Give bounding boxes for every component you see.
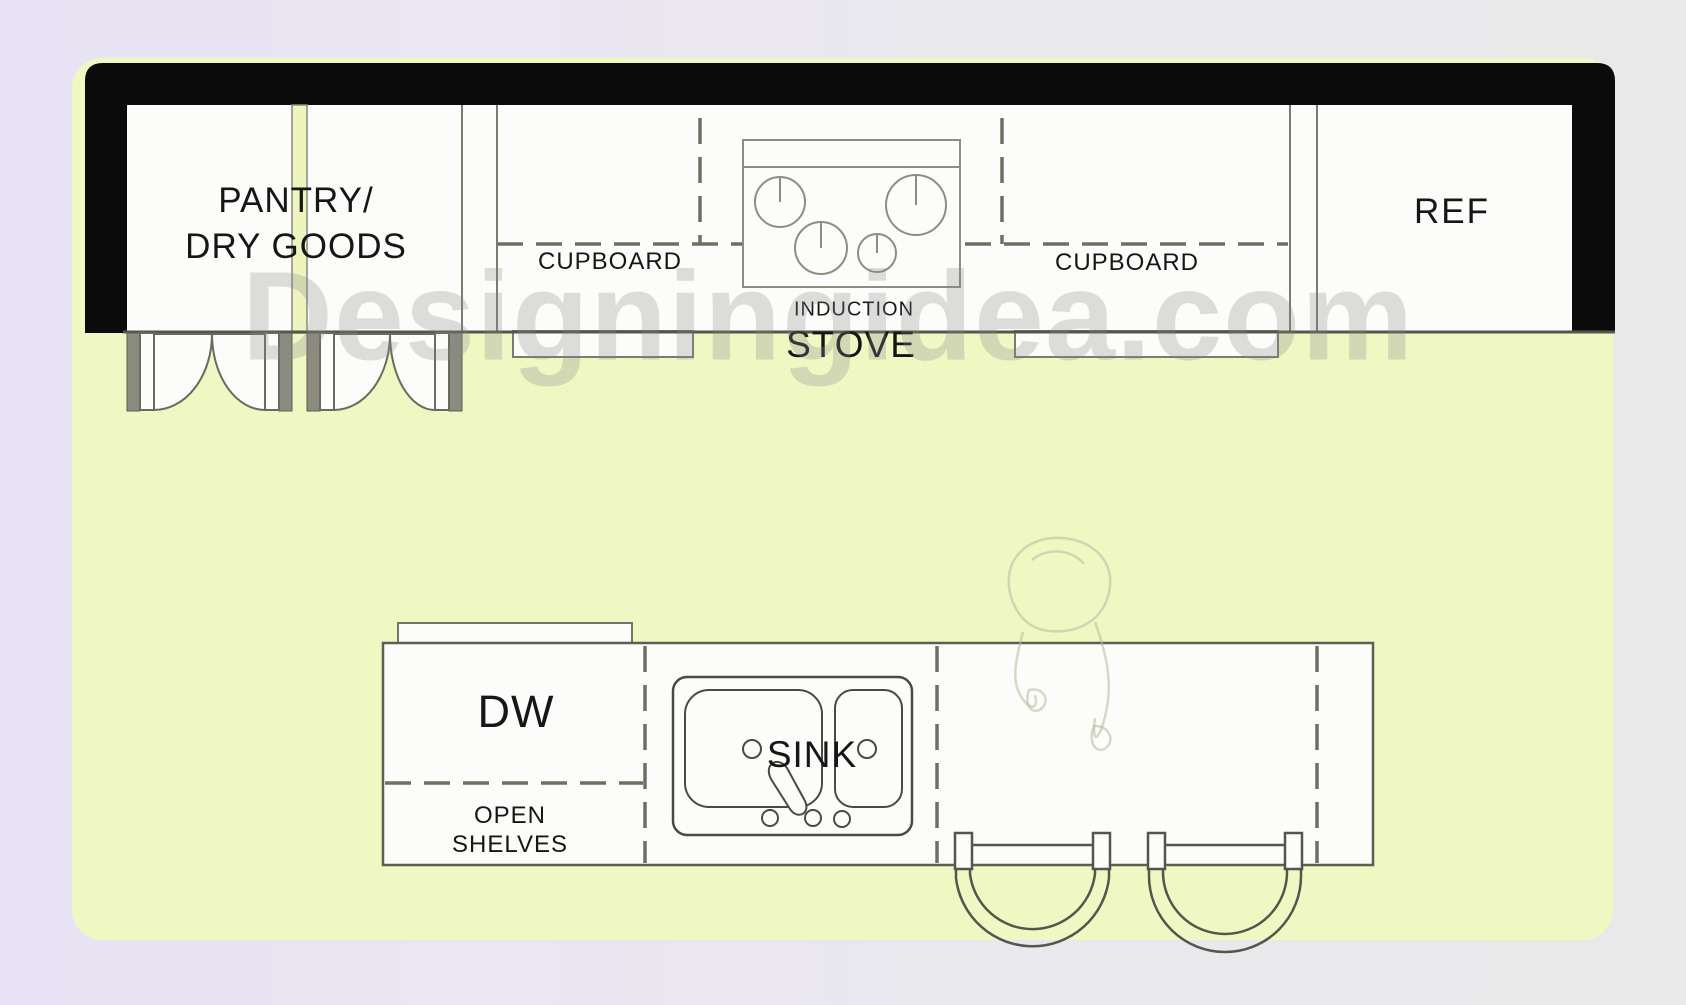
stove-label-line2: STOVE — [786, 324, 916, 366]
stove-icon — [743, 140, 960, 287]
dishwasher-label: DW — [478, 686, 555, 738]
counter-strip-right — [1015, 331, 1278, 357]
ref-label: REF — [1414, 192, 1490, 232]
stove-label-line1: INDUCTION — [794, 299, 914, 322]
sink-label: SINK — [767, 734, 857, 776]
cupboard-right-label: CUPBOARD — [1055, 249, 1199, 277]
open-shelves-label-line1: OPEN — [474, 802, 546, 830]
cupboard-left-label: CUPBOARD — [538, 248, 682, 276]
open-shelves-label-line2: SHELVES — [452, 831, 568, 859]
pantry-label-line1: PANTRY/ — [218, 181, 373, 221]
kitchen-floor-plan: PANTRY/ DRY GOODS CUPBOARD INDUCTION STO… — [0, 0, 1686, 1005]
counter-strip-left — [513, 331, 693, 357]
floor-plan-drawing — [0, 0, 1686, 1005]
pantry-label-line2: DRY GOODS — [185, 227, 407, 267]
island-overhang — [398, 623, 632, 643]
